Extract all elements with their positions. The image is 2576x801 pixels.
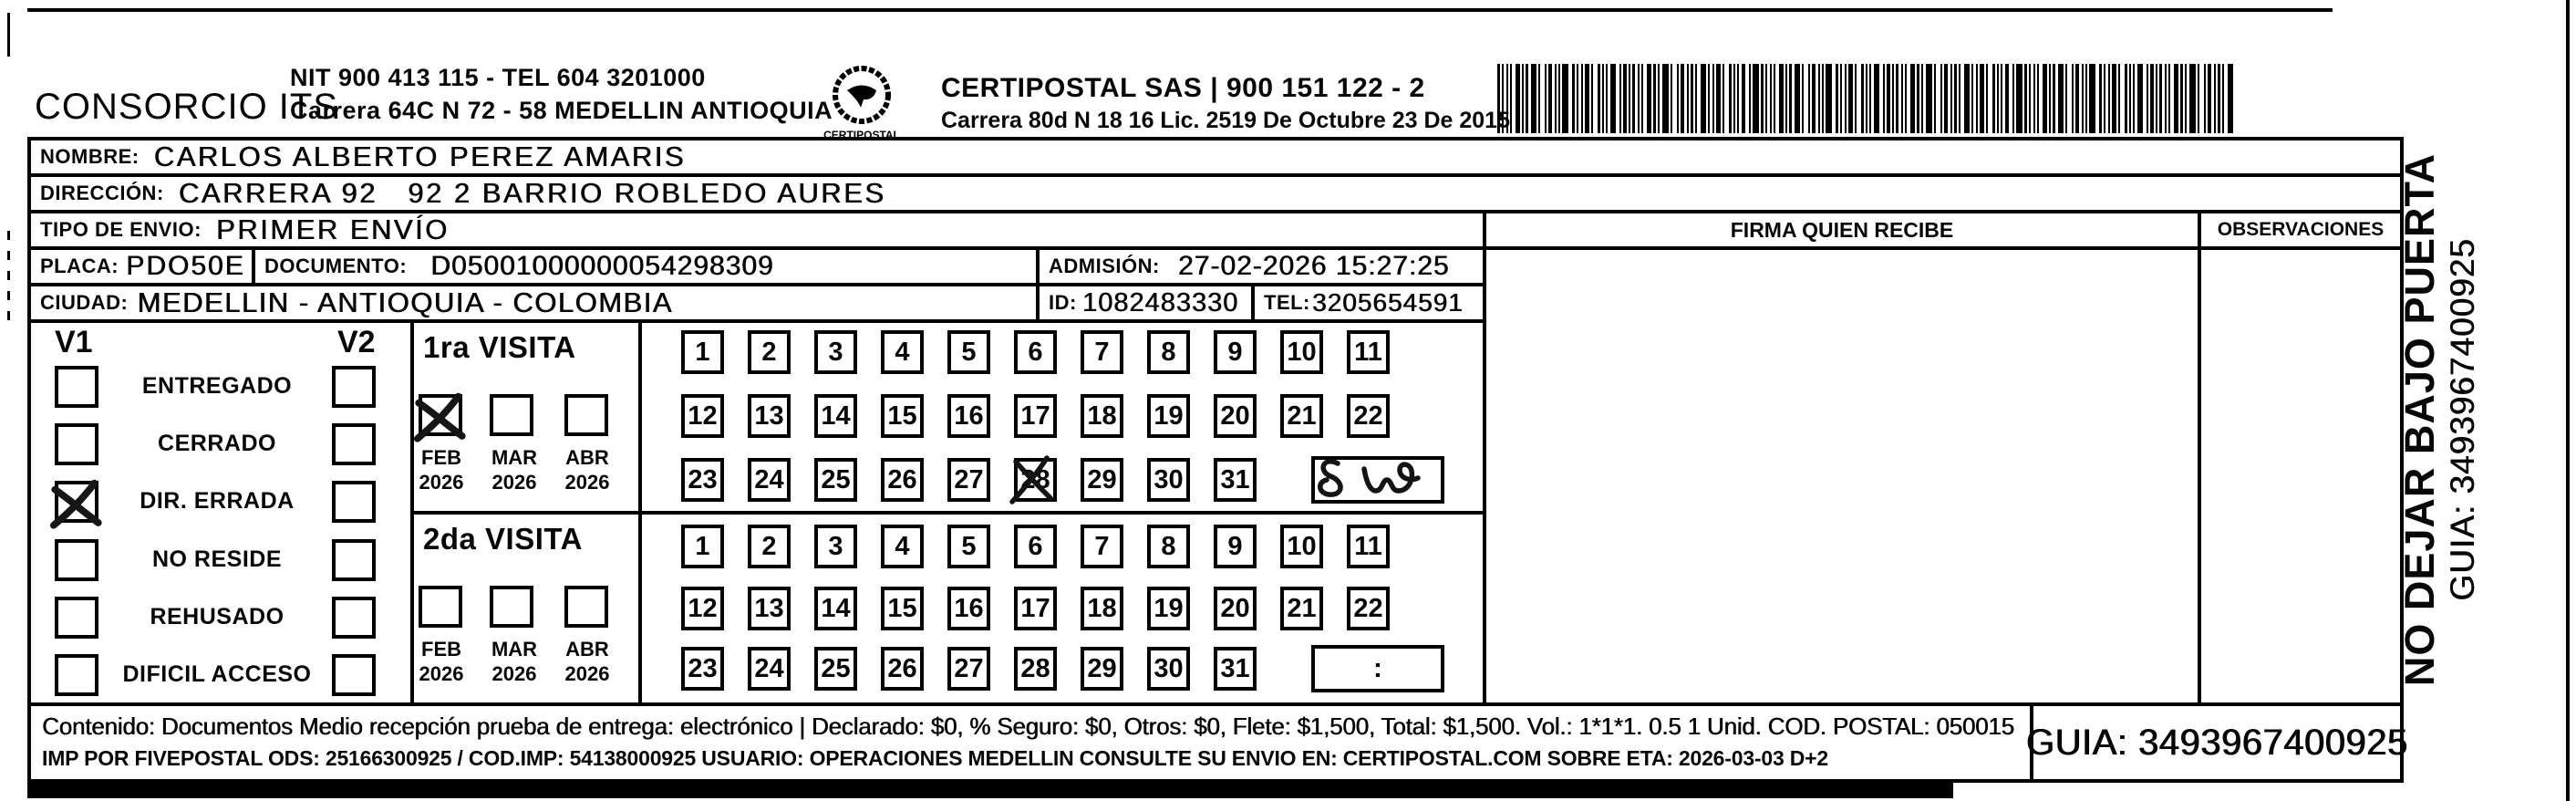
day-box-18: 18	[1081, 394, 1123, 438]
placa-label: PLACA:	[40, 255, 119, 278]
barcode-bar	[2053, 64, 2055, 133]
barcode-bar	[1510, 64, 1512, 133]
day-box-19: 19	[1147, 394, 1190, 438]
day-box-11: 11	[1347, 525, 1390, 568]
v1-column-header: V1	[55, 325, 93, 360]
day-box-12: 12	[681, 394, 724, 438]
barcode-bar	[1892, 64, 1894, 133]
day-box-18: 18	[1081, 587, 1123, 630]
observaciones-area	[2198, 246, 2404, 706]
barcode-bar	[1522, 64, 1524, 133]
documento-cell: DOCUMENTO: D05001000000054298309	[252, 246, 1040, 286]
month-checkbox-abr	[564, 394, 608, 436]
tel-cell: TEL: 3205654591	[1251, 283, 1486, 323]
barcode-bar	[1742, 64, 1745, 133]
barcode-bar	[2058, 64, 2064, 133]
barcode-bar	[1647, 64, 1651, 133]
barcode-bar	[2156, 64, 2157, 133]
barcode-bar	[1802, 64, 1804, 133]
barcode-bar	[1770, 64, 1772, 133]
barcode-bar	[2043, 64, 2047, 133]
side-note-warning: NO DEJAR BAJO PUERTA	[2396, 100, 2444, 739]
day-box-25: 25	[814, 458, 857, 502]
barcode-bar	[2033, 64, 2035, 133]
barcode-bar	[1548, 64, 1552, 133]
barcode-bar	[1558, 64, 1560, 133]
barcode-bar	[1662, 64, 1669, 133]
day-box-6: 6	[1014, 525, 1057, 568]
v1-checkbox	[55, 423, 98, 465]
time-box: :	[1311, 645, 1444, 692]
barcode-bar	[2024, 64, 2027, 133]
v1-checkbox	[55, 366, 98, 408]
barcode-bar	[1638, 64, 1640, 133]
barcode-bar	[1581, 64, 1583, 133]
day-box-13: 13	[748, 394, 791, 438]
barcode-bar	[2099, 64, 2102, 133]
day-box-5: 5	[947, 330, 990, 374]
barcode-bar	[1712, 64, 1714, 133]
firma-signature-area	[1483, 246, 2201, 706]
barcode-bar	[1708, 64, 1710, 133]
barcode-bar	[1940, 64, 1942, 133]
barcode-bar	[2168, 64, 2170, 133]
note-box-handwritten	[1311, 456, 1444, 504]
barcode-bar	[1555, 64, 1557, 133]
day-box-12: 12	[681, 587, 724, 630]
day-box-25: 25	[814, 647, 857, 691]
barcode-bar	[2125, 64, 2127, 133]
id-label: ID:	[1049, 291, 1077, 315]
barcode-bar	[2082, 64, 2084, 133]
barcode-bar	[1585, 64, 1589, 133]
barcode-bar	[1653, 64, 1656, 133]
v2-checkbox	[332, 481, 376, 523]
barcode-bar	[2108, 64, 2110, 133]
status-option-label: DIFICIL ACCESO	[108, 661, 326, 688]
barcode-bar	[1944, 64, 1948, 133]
barcode-bar	[2037, 64, 2039, 133]
month-label: ABR2026	[556, 637, 618, 686]
day-box-17: 17	[1014, 394, 1057, 438]
barcode-bar	[1861, 64, 1864, 133]
calendar-panel: 1234567891011121314151617181920212223242…	[638, 319, 1486, 706]
barcode-bar	[1572, 64, 1575, 133]
barcode-bar	[1753, 64, 1759, 133]
day-box-2: 2	[748, 330, 791, 374]
day-box-30: 30	[1147, 647, 1190, 691]
barcode-bar	[2118, 64, 2120, 133]
barcode-bar	[1905, 64, 1907, 133]
day-box-28: 28	[1014, 647, 1057, 691]
company-info-line2: Carrera 64C N 72 - 58 MEDELLIN ANTIOQUIA	[290, 97, 833, 125]
day-box-7: 7	[1081, 330, 1123, 374]
direccion-value: CARRERA 92 92 2 BARRIO ROBLEDO AURES	[179, 177, 886, 210]
status-row: CERRADO	[31, 423, 410, 467]
month-label: MAR2026	[483, 445, 545, 494]
firma-header: FIRMA QUIEN RECIBE	[1483, 210, 2201, 250]
barcode-bar	[1840, 64, 1842, 133]
day-box-6: 6	[1014, 330, 1057, 374]
barcode-bar	[1761, 64, 1764, 133]
barcode-bar	[1526, 64, 1528, 133]
day-box-8: 8	[1147, 330, 1190, 374]
day-box-31: 31	[1214, 647, 1257, 691]
guia-number: GUIA: 3493967400925	[2026, 723, 2408, 764]
barcode-bar	[1695, 64, 1697, 133]
month-label: FEB2026	[410, 445, 472, 494]
barcode-bar	[1619, 64, 1621, 133]
left-scan-tick	[7, 13, 10, 57]
barcode-bar	[2222, 64, 2224, 133]
documento-value: D05001000000054298309	[430, 251, 773, 282]
day-box-21: 21	[1280, 587, 1323, 630]
footer-imp-line: IMP POR FIVEPOSTAL ODS: 25166300925 / CO…	[42, 746, 1828, 771]
day-box-30: 30	[1147, 458, 1190, 502]
v1-checkbox	[55, 481, 98, 523]
barcode-bar	[1598, 64, 1600, 133]
barcode-bar	[1623, 64, 1627, 133]
barcode-bar	[1826, 64, 1832, 133]
day-box-20: 20	[1214, 587, 1257, 630]
tracking-barcode	[1497, 64, 2236, 133]
status-option-label: DIR. ERRADA	[108, 488, 326, 515]
day-box-28: 28	[1014, 458, 1057, 502]
visit2-title: 2da VISITA	[423, 522, 583, 557]
barcode-bar	[1658, 64, 1660, 133]
status-option-label: CERRADO	[108, 431, 326, 457]
month-label: MAR2026	[483, 637, 545, 686]
barcode-bar	[1980, 64, 1984, 133]
barcode-bar	[2065, 64, 2067, 133]
id-cell: ID: 1082483330	[1036, 283, 1255, 323]
day-box-19: 19	[1147, 587, 1190, 630]
tipo-envio-row: TIPO DE ENVIO: PRIMER ENVÍO	[27, 210, 1486, 250]
barcode-bar	[1845, 64, 1847, 133]
day-box-10: 10	[1280, 525, 1323, 568]
status-panel: V1 V2 ENTREGADO CERRADO DIR. ERRADA NO R…	[27, 319, 414, 706]
day-box-11: 11	[1347, 330, 1390, 374]
admision-label: ADMISIÓN:	[1049, 255, 1160, 278]
month-label: ABR2026	[556, 445, 618, 494]
barcode-bar	[1954, 64, 1957, 133]
month-checkbox-mar	[490, 394, 533, 436]
carrier-line2: Carrera 80d N 18 16 Lic. 2519 De Octubre…	[941, 108, 1510, 134]
day-box-1: 1	[681, 330, 724, 374]
day-box-22: 22	[1347, 394, 1390, 438]
right-scan-line	[2566, 0, 2570, 801]
day-box-9: 9	[1214, 330, 1257, 374]
day-box-29: 29	[1081, 647, 1123, 691]
barcode-bar	[2165, 64, 2167, 133]
barcode-bar	[1765, 64, 1767, 133]
day-box-24: 24	[748, 647, 791, 691]
barcode-bar	[2089, 64, 2095, 133]
barcode-bar	[1733, 64, 1735, 133]
handwritten-x-mark	[51, 476, 102, 531]
barcode-bar	[2129, 64, 2131, 133]
day-box-24: 24	[748, 458, 791, 502]
barcode-bar	[1896, 64, 1898, 133]
barcode-bar	[2075, 64, 2079, 133]
barcode-bar	[1971, 64, 1973, 133]
barcode-bar	[1538, 64, 1540, 133]
barcode-bar	[1629, 64, 1630, 133]
day-box-1: 1	[681, 525, 724, 568]
barcode-bar	[1934, 64, 1936, 133]
barcode-bar	[1959, 64, 1960, 133]
day-box-3: 3	[814, 330, 857, 374]
month-checkbox-abr	[564, 586, 608, 628]
day-box-9: 9	[1214, 525, 1257, 568]
ciudad-label: CIUDAD:	[40, 291, 128, 315]
barcode-bar	[2208, 64, 2211, 133]
barcode-bar	[2137, 64, 2143, 133]
barcode-bar	[1997, 64, 1999, 133]
visita-panel-divider	[414, 511, 638, 515]
barcode-bar	[2085, 64, 2087, 133]
barcode-bar	[1591, 64, 1593, 133]
top-scan-line	[27, 8, 2333, 12]
barcode-bar	[1606, 64, 1608, 133]
v2-checkbox	[332, 539, 376, 581]
bottom-scan-bar	[27, 783, 1953, 798]
placa-cell: PLACA: PDO50E	[27, 246, 255, 286]
barcode-bar	[2198, 64, 2199, 133]
day-box-20: 20	[1214, 394, 1257, 438]
barcode-bar	[1602, 64, 1604, 133]
barcode-bar	[2189, 64, 2196, 133]
barcode-bar	[1610, 64, 1616, 133]
barcode-bar	[1506, 64, 1508, 133]
tel-label: TEL:	[1264, 291, 1310, 315]
barcode-bar	[1887, 64, 1890, 133]
direccion-label: DIRECCIÓN:	[40, 182, 164, 205]
day-box-26: 26	[881, 647, 924, 691]
carrier-line1: CERTIPOSTAL SAS | 900 151 122 - 2	[941, 73, 1425, 104]
day-box-2: 2	[748, 525, 791, 568]
barcode-bar	[2104, 64, 2105, 133]
calendar-panel-divider	[642, 511, 1483, 515]
barcode-bar	[2214, 64, 2216, 133]
barcode-bar	[2016, 64, 2023, 133]
barcode-bar	[2180, 64, 2183, 133]
left-dashed-artifact	[7, 231, 10, 320]
nombre-label: NOMBRE:	[40, 145, 140, 169]
status-option-label: ENTREGADO	[108, 373, 326, 400]
barcode-bar	[2204, 64, 2206, 133]
barcode-bar	[1848, 64, 1853, 133]
month-checkbox-feb	[419, 586, 462, 628]
company-info-line1: NIT 900 413 115 - TEL 604 3201000	[290, 64, 706, 92]
barcode-bar	[1986, 64, 1988, 133]
direccion-row: DIRECCIÓN: CARRERA 92 92 2 BARRIO ROBLED…	[27, 173, 2404, 213]
status-row: NO RESIDE	[31, 539, 410, 583]
barcode-bar	[1866, 64, 1867, 133]
tipo-envio-label: TIPO DE ENVIO:	[40, 218, 202, 242]
barcode-bar	[2001, 64, 2002, 133]
barcode-bar	[1497, 64, 1500, 133]
barcode-bar	[1516, 64, 1520, 133]
month-checkbox-mar	[490, 586, 533, 628]
day-box-21: 21	[1280, 394, 1323, 438]
barcode-bar	[1701, 64, 1706, 133]
v2-checkbox	[332, 654, 376, 696]
visit1-title: 1ra VISITA	[423, 330, 576, 365]
barcode-bar	[2147, 64, 2148, 133]
barcode-bar	[1808, 64, 1810, 133]
barcode-bar	[1562, 64, 1568, 133]
status-option-label: NO RESIDE	[108, 546, 326, 573]
barcode-bar	[1577, 64, 1578, 133]
barcode-bar	[1671, 64, 1672, 133]
day-box-14: 14	[814, 587, 857, 630]
nombre-value: CARLOS ALBERTO PEREZ AMARIS	[154, 140, 686, 173]
barcode-bar	[1910, 64, 1915, 133]
side-note-guia: GUIA: 3493967400925	[2444, 100, 2482, 739]
documento-label: DOCUMENTO:	[264, 255, 407, 278]
day-box-22: 22	[1347, 587, 1390, 630]
scanned-delivery-form: CONSORCIO ITS NIT 900 413 115 - TEL 604 …	[0, 0, 2576, 801]
day-box-31: 31	[1214, 458, 1257, 502]
barcode-bar	[1749, 64, 1751, 133]
day-box-7: 7	[1081, 525, 1123, 568]
tipo-envio-value: PRIMER ENVÍO	[216, 213, 450, 246]
day-box-4: 4	[881, 525, 924, 568]
day-box-23: 23	[681, 458, 724, 502]
barcode-bar	[1818, 64, 1820, 133]
barcode-bar	[2005, 64, 2009, 133]
day-box-13: 13	[748, 587, 791, 630]
month-label: FEB2026	[410, 637, 472, 686]
status-option-label: REHUSADO	[108, 604, 326, 630]
barcode-bar	[2174, 64, 2178, 133]
barcode-bar	[1964, 64, 1970, 133]
day-box-15: 15	[881, 587, 924, 630]
day-box-17: 17	[1014, 587, 1057, 630]
barcode-bar	[1677, 64, 1679, 133]
day-box-4: 4	[881, 330, 924, 374]
barcode-bar	[1687, 64, 1689, 133]
day-box-14: 14	[814, 394, 857, 438]
barcode-bar	[2150, 64, 2154, 133]
month-checkbox-feb	[419, 394, 462, 436]
day-box-23: 23	[681, 647, 724, 691]
barcode-bar	[2228, 64, 2233, 133]
status-row: DIFICIL ACCESO	[31, 654, 410, 698]
v1-checkbox	[55, 539, 98, 581]
barcode-bar	[1681, 64, 1684, 133]
barcode-bar	[2012, 64, 2014, 133]
barcode-bar	[1976, 64, 1978, 133]
barcode-bar	[1789, 64, 1792, 133]
v2-checkbox	[332, 366, 376, 408]
barcode-bar	[1729, 64, 1732, 133]
v2-checkbox	[332, 597, 376, 639]
barcode-bar	[1869, 64, 1871, 133]
barcode-bar	[1795, 64, 1800, 133]
barcode-bar	[2159, 64, 2162, 133]
barcode-bar	[1779, 64, 1784, 133]
day-box-16: 16	[947, 587, 990, 630]
side-note-rotated: NO DEJAR BAJO PUERTA GUIA: 3493967400925	[2396, 100, 2533, 739]
firma-header-label: FIRMA QUIEN RECIBE	[1731, 218, 1954, 243]
v2-column-header: V2	[337, 325, 376, 360]
day-box-5: 5	[947, 525, 990, 568]
barcode-bar	[1812, 64, 1816, 133]
day-box-16: 16	[947, 394, 990, 438]
day-box-27: 27	[947, 458, 990, 502]
barcode-bar	[1921, 64, 1923, 133]
day-box-8: 8	[1147, 525, 1190, 568]
barcode-bar	[1917, 64, 1919, 133]
barcode-bar	[2112, 64, 2116, 133]
barcode-bar	[1883, 64, 1885, 133]
barcode-bar	[1836, 64, 1838, 133]
barcode-bar	[2029, 64, 2031, 133]
barcode-bar	[1691, 64, 1693, 133]
barcode-bar	[2185, 64, 2187, 133]
admision-cell: ADMISIÓN: 27-02-2026 15:27:25	[1036, 246, 1486, 286]
status-row: REHUSADO	[31, 597, 410, 640]
admision-value: 27-02-2026 15:27:25	[1178, 251, 1450, 282]
day-box-15: 15	[881, 394, 924, 438]
v1-checkbox	[55, 654, 98, 696]
barcode-bar	[1632, 64, 1635, 133]
day-box-3: 3	[814, 525, 857, 568]
barcode-bar	[1855, 64, 1857, 133]
barcode-bar	[1723, 64, 1724, 133]
status-row: ENTREGADO	[31, 366, 410, 410]
status-row: DIR. ERRADA	[31, 481, 410, 525]
barcode-bar	[2049, 64, 2051, 133]
footer-box: Contenido: Documentos Medio recepción pr…	[27, 702, 2033, 783]
barcode-bar	[1822, 64, 1824, 133]
barcode-bar	[2072, 64, 2074, 133]
barcode-bar	[1785, 64, 1787, 133]
ciudad-value: MEDELLIN - ANTIOQUIA - COLOMBIA	[137, 286, 672, 319]
barcode-bar	[1950, 64, 1952, 133]
v2-checkbox	[332, 423, 376, 465]
barcode-bar	[2133, 64, 2135, 133]
barcode-bar	[1641, 64, 1643, 133]
barcode-bar	[1737, 64, 1739, 133]
visita-panel: 1ra VISITA FEB2026 MAR2026 ABR2026 2da V…	[410, 319, 642, 706]
barcode-bar	[1926, 64, 1932, 133]
barcode-bar	[1874, 64, 1879, 133]
ciudad-cell: CIUDAD: MEDELLIN - ANTIOQUIA - COLOMBIA	[27, 283, 1040, 323]
barcode-bar	[1531, 64, 1536, 133]
nombre-row: NOMBRE: CARLOS ALBERTO PEREZ AMARIS	[27, 137, 2404, 177]
footer-content-line: Contenido: Documentos Medio recepción pr…	[42, 713, 2014, 741]
barcode-bar	[1716, 64, 1721, 133]
handwritten-x-mark	[415, 390, 466, 444]
barcode-bar	[1992, 64, 1995, 133]
barcode-bar	[1502, 64, 1504, 133]
day-box-10: 10	[1280, 330, 1323, 374]
barcode-bar	[1901, 64, 1903, 133]
guia-box: GUIA: 3493967400925	[2030, 702, 2404, 783]
day-box-27: 27	[947, 647, 990, 691]
tel-value: 3205654591	[1312, 288, 1464, 317]
placa-value: PDO50E	[126, 251, 244, 282]
side-note: NO DEJAR BAJO PUERTA GUIA: 3493967400925	[2396, 100, 2533, 739]
day-box-26: 26	[881, 458, 924, 502]
day-box-29: 29	[1081, 458, 1123, 502]
observaciones-header: OBSERVACIONES	[2198, 210, 2404, 250]
barcode-bar	[2218, 64, 2220, 133]
barcode-bar	[1545, 64, 1547, 133]
